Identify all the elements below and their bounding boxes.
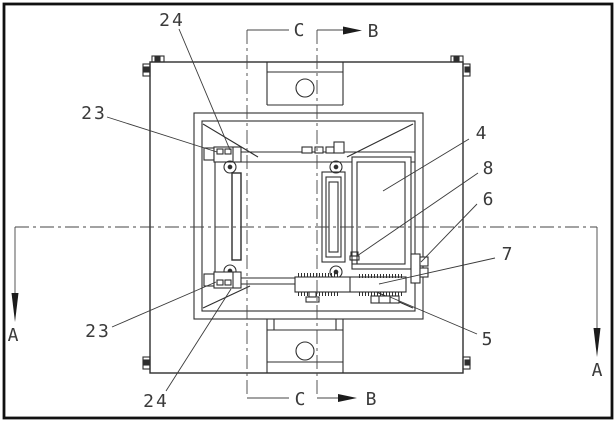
outer-plate-outline (150, 62, 463, 373)
leader-23-top (107, 117, 217, 152)
top-tab-hole (296, 79, 314, 97)
corner-bolt-bottom-right (463, 357, 470, 369)
brace-bottom-left (203, 286, 250, 308)
rail-tab-3 (326, 147, 334, 153)
leader-5 (390, 297, 477, 334)
leader-24-bottom (166, 289, 231, 391)
ref-label-8: 8 (483, 158, 496, 179)
section-b-arrow-top (343, 27, 362, 35)
patent-figure-page: 24 23 C B 4 8 6 7 5 A A 23 24 C B (0, 0, 616, 422)
rail-tab-2 (315, 147, 323, 153)
right-panel (352, 157, 411, 269)
ref-label-24-top: 24 (159, 10, 185, 31)
reference-labels: 24 23 C B 4 8 6 7 5 A A 23 24 C B (8, 10, 605, 412)
section-line-c (247, 30, 289, 398)
ref-label-24-bottom: 24 (143, 391, 169, 412)
top-mounting-tab (267, 62, 343, 105)
outer-plate (143, 56, 470, 373)
section-label-b-bottom: B (366, 389, 379, 410)
corner-bolt-top-left (143, 56, 164, 76)
ref-label-6: 6 (483, 189, 496, 210)
leader-23-bottom (112, 282, 216, 327)
border-frame (4, 4, 612, 418)
corner-bolt-bottom-left (143, 357, 150, 369)
corner-bolt-top-right (451, 56, 470, 76)
bottom-slide-rail (204, 265, 406, 303)
ref-label-4: 4 (476, 123, 489, 144)
section-label-a-left: A (8, 325, 21, 346)
leader-lines (107, 29, 495, 391)
center-guide-slot (322, 172, 345, 262)
rail-tab-4 (334, 142, 344, 153)
section-label-b-top: B (368, 21, 381, 42)
bottom-left-bracket (204, 274, 214, 286)
section-b-arrow-bottom (338, 394, 357, 402)
section-label-c-top: C (294, 20, 307, 41)
section-label-a-right: A (592, 360, 605, 381)
screw-marker-top-left (224, 161, 236, 173)
left-guide-slot (232, 173, 241, 260)
leader-24-top (179, 29, 230, 150)
ref-label-23-bottom: 23 (85, 321, 111, 342)
ref-label-7: 7 (502, 244, 515, 265)
end-bracket-6 (411, 254, 428, 283)
bottom-mounting-tab (267, 319, 343, 373)
bottom-tab-hole (296, 342, 314, 360)
section-a-arrow-left (12, 293, 19, 322)
ref-label-23-top: 23 (81, 103, 107, 124)
section-label-c-bottom: C (295, 389, 308, 410)
rail-tab-1 (302, 147, 312, 153)
leader-6 (421, 204, 477, 262)
section-a-arrow-right (594, 328, 601, 357)
ref-label-5: 5 (482, 329, 495, 350)
patent-figure-svg: 24 23 C B 4 8 6 7 5 A A 23 24 C B (0, 0, 616, 422)
screw-marker-top-right (330, 161, 342, 173)
